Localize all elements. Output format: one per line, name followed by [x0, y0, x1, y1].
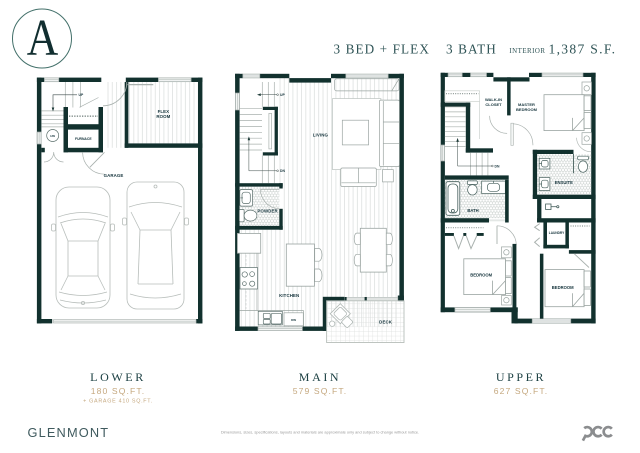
svg-text:ENSUITE: ENSUITE [555, 180, 573, 185]
svg-text:KITCHEN: KITCHEN [279, 293, 299, 298]
svg-text:FLEX: FLEX [158, 109, 170, 114]
svg-text:HW: HW [50, 134, 55, 138]
svg-text:DECK: DECK [379, 320, 393, 325]
svg-text:FURNACE: FURNACE [75, 137, 92, 141]
svg-text:BATH: BATH [467, 208, 478, 213]
svg-text:BEDROOM: BEDROOM [516, 107, 538, 112]
svg-text:DN: DN [280, 169, 285, 173]
svg-text:579 SQ.FT.: 579 SQ.FT. [293, 386, 347, 396]
svg-text:A: A [27, 10, 59, 67]
svg-text:GLENMONT: GLENMONT [28, 425, 110, 440]
svg-text:DW: DW [291, 318, 296, 322]
svg-text:3 BED + FLEX: 3 BED + FLEX [334, 41, 430, 56]
svg-text:UPPER: UPPER [496, 370, 546, 384]
svg-text:CLOSET: CLOSET [485, 102, 502, 107]
svg-text:UP: UP [79, 93, 84, 97]
svg-text:UP: UP [280, 93, 285, 97]
svg-text:627 SQ.FT.: 627 SQ.FT. [494, 386, 548, 396]
svg-text:POWDER: POWDER [257, 208, 278, 213]
svg-text:3 BATH: 3 BATH [446, 41, 497, 56]
svg-text:ROOM: ROOM [156, 114, 170, 119]
svg-text:INTERIOR: INTERIOR [509, 48, 545, 55]
svg-text:180 SQ.FT.: 180 SQ.FT. [91, 386, 145, 396]
svg-text:+ GARAGE 410 SQ.FT.: + GARAGE 410 SQ.FT. [83, 399, 153, 405]
svg-text:BEDROOM: BEDROOM [470, 273, 492, 278]
svg-text:LOWER: LOWER [90, 370, 146, 384]
svg-text:Dimensions, sizes, specificati: Dimensions, sizes, specifications, layou… [221, 430, 419, 435]
svg-text:1,387 S.F.: 1,387 S.F. [549, 41, 617, 56]
svg-text:LAUNDRY: LAUNDRY [549, 231, 565, 235]
svg-text:GARAGE: GARAGE [104, 173, 124, 178]
svg-text:MAIN: MAIN [299, 370, 341, 384]
svg-text:LIVING: LIVING [313, 133, 329, 138]
svg-text:DN: DN [495, 164, 500, 168]
svg-text:BEDROOM: BEDROOM [552, 285, 574, 290]
